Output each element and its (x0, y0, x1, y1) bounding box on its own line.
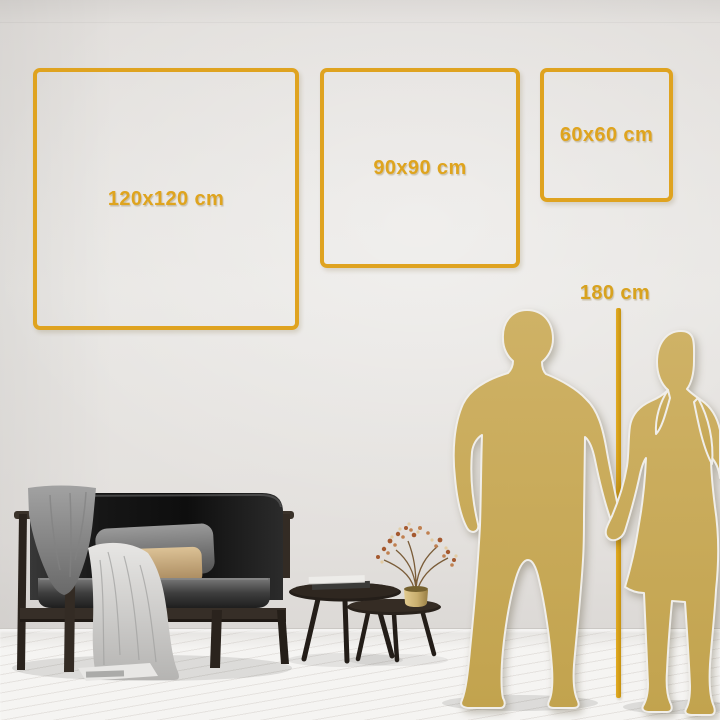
size-label-120x120: 120x120 cm (108, 188, 224, 211)
size-frame-60x60: 60x60 cm (540, 68, 673, 202)
wood-floor (0, 628, 720, 720)
size-frame-90x90: 90x90 cm (320, 68, 520, 268)
size-frame-120x120: 120x120 cm (33, 68, 299, 330)
height-measure-line (616, 308, 621, 698)
product-size-guide-image: 120x120 cm 90x90 cm 60x60 cm 180 cm (0, 0, 720, 720)
height-label: 180 cm (555, 282, 675, 305)
size-label-90x90: 90x90 cm (373, 157, 466, 180)
size-label-60x60: 60x60 cm (560, 124, 653, 147)
